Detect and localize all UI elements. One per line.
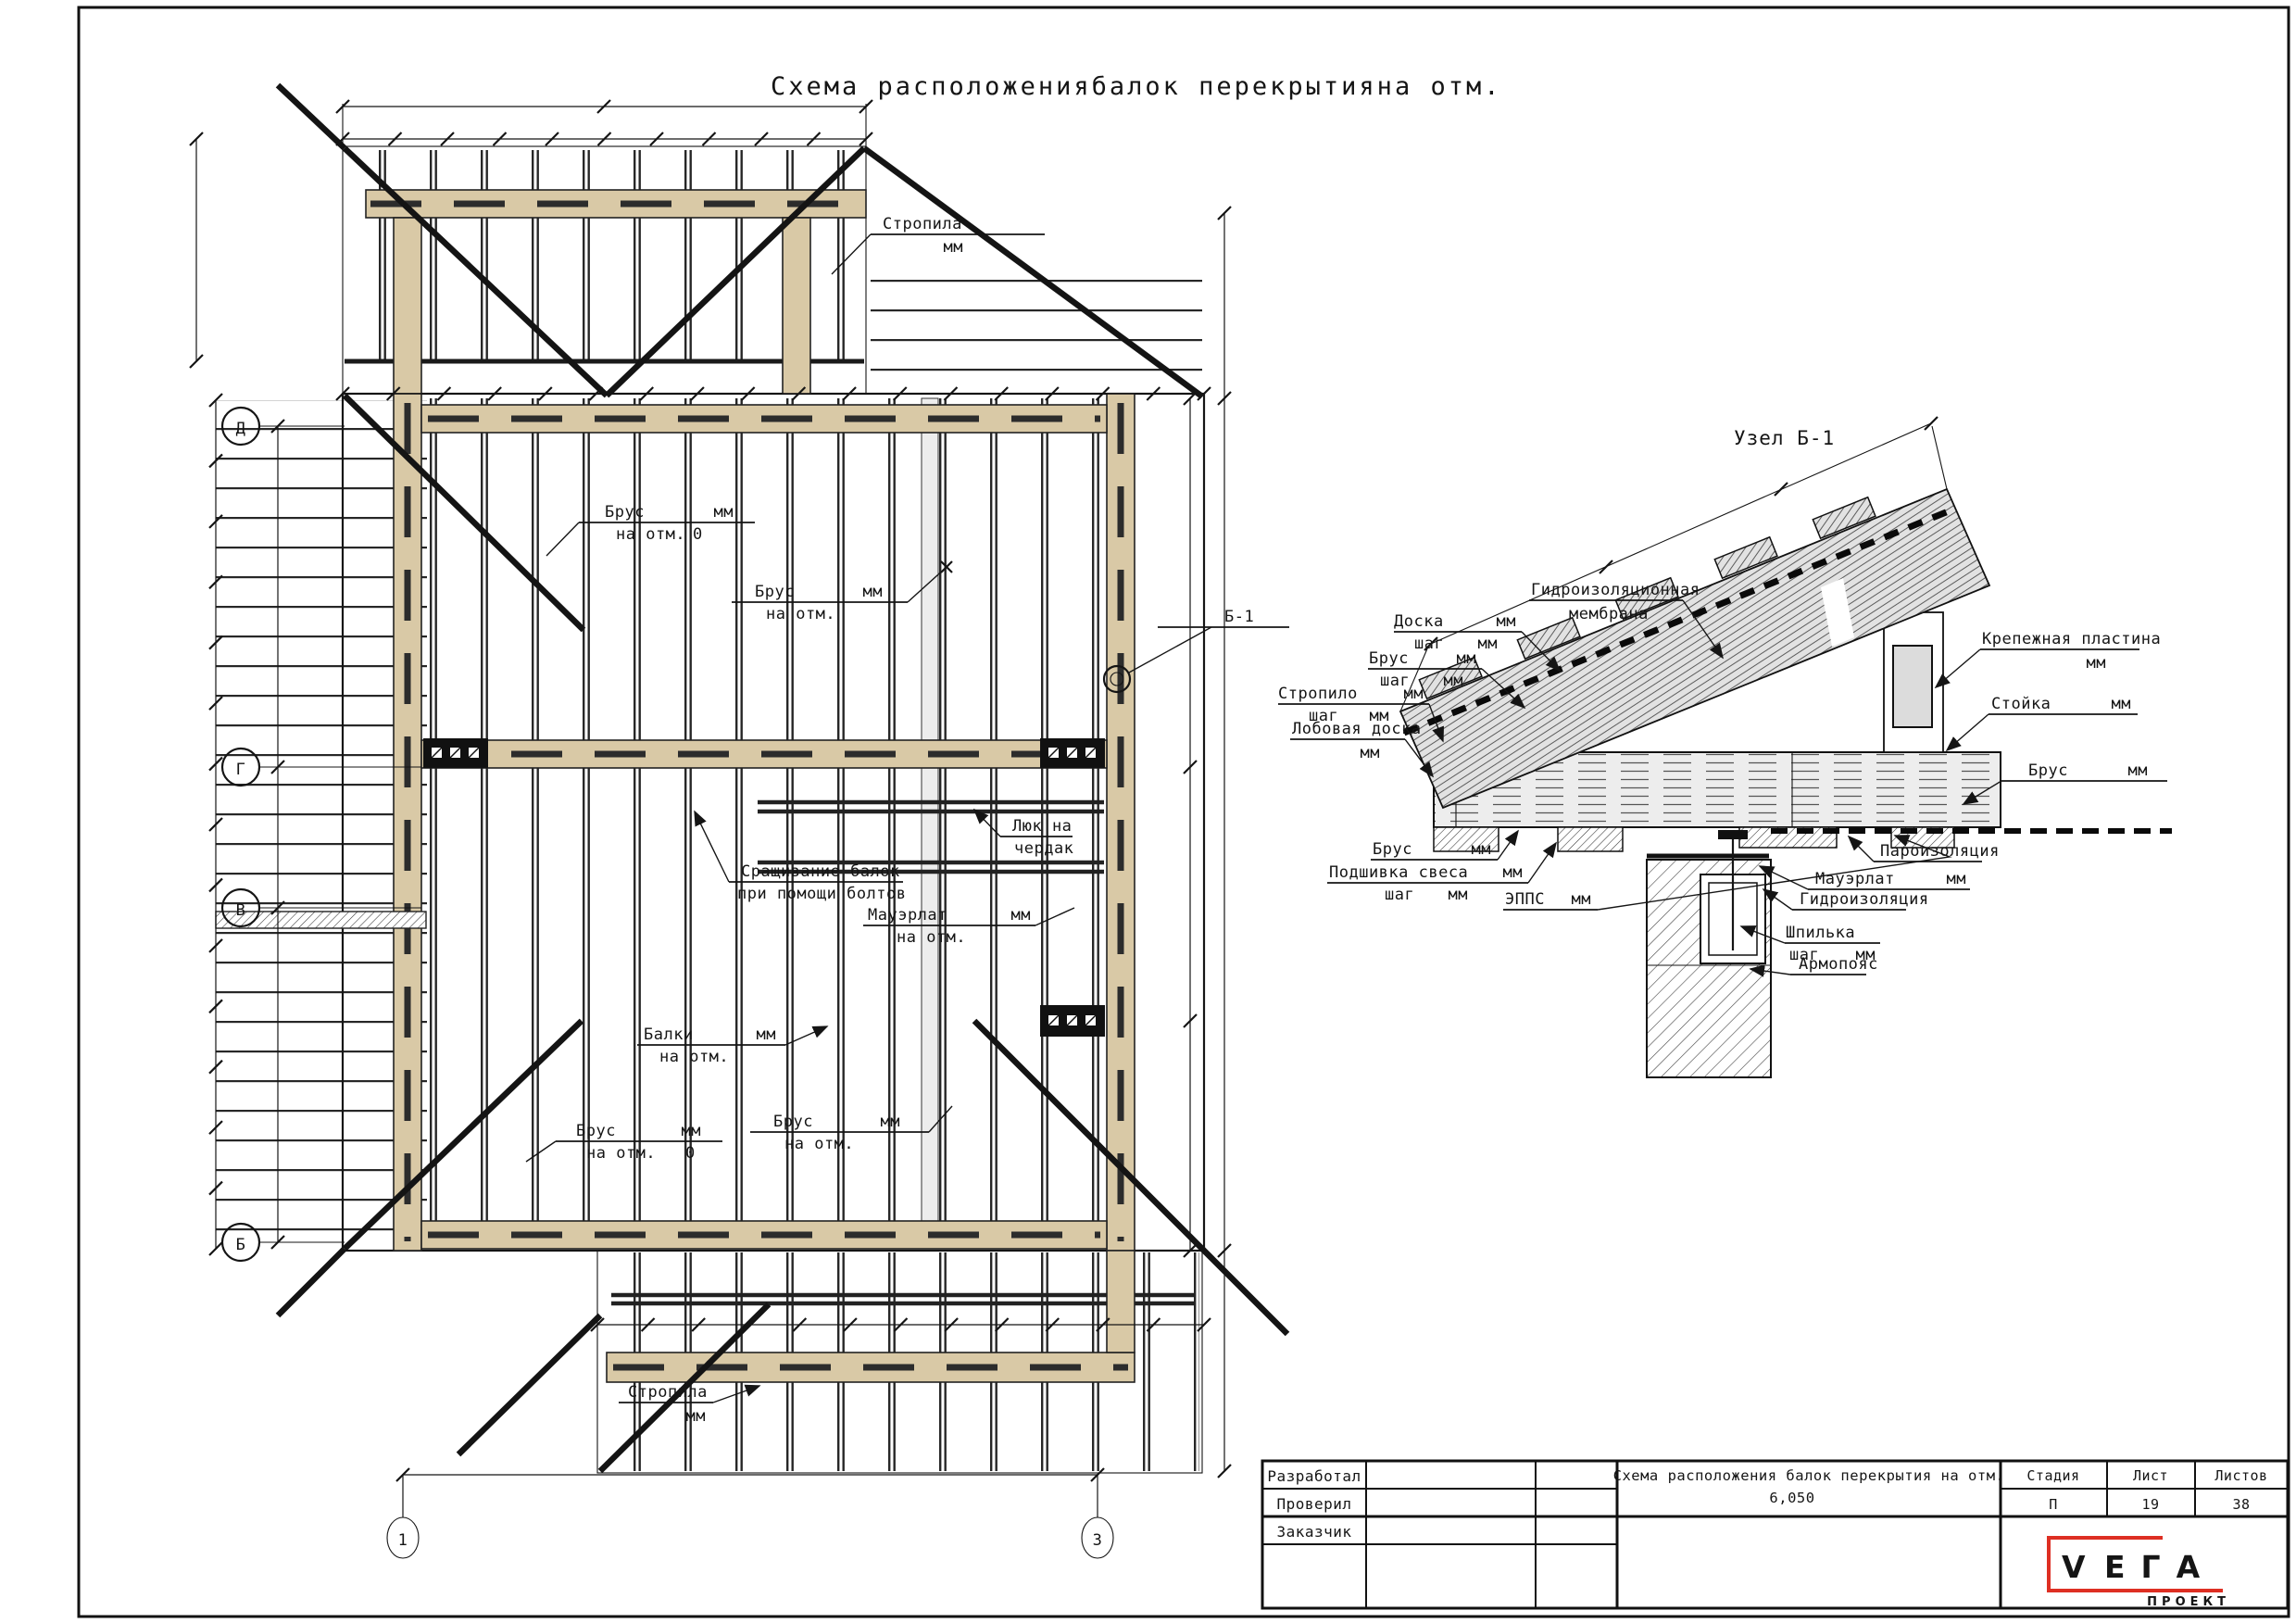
svg-text:на отм.: на отм. bbox=[586, 1144, 656, 1163]
sheet-label: Лист bbox=[2133, 1467, 2168, 1484]
axis-bubble-3: 3 bbox=[1093, 1531, 1103, 1550]
svg-text:Брус: Брус bbox=[755, 583, 795, 601]
axis-bubble-d: Д bbox=[236, 420, 246, 438]
sheet-value: 19 bbox=[2141, 1496, 2159, 1513]
titleblock-row-client: Заказчик bbox=[1276, 1523, 1351, 1541]
svg-text:на отм.: на отм. bbox=[784, 1135, 854, 1153]
doc-title: Схема расположения балок перекрытия на о… bbox=[1613, 1467, 2005, 1484]
svg-text:мм: мм bbox=[1444, 672, 1463, 690]
svg-text:Балки: Балки bbox=[644, 1025, 694, 1044]
svg-text:мм: мм bbox=[944, 238, 963, 257]
vega-logo: V ЕГА ПРОЕКТ bbox=[2049, 1538, 2230, 1609]
svg-text:шаг: шаг bbox=[1414, 635, 1444, 653]
axis-bubble-v: В bbox=[236, 901, 246, 920]
svg-text:Армопояс: Армопояс bbox=[1799, 955, 1878, 974]
svg-text:Подшивка свеса: Подшивка свеса bbox=[1329, 863, 1468, 882]
svg-text:мм: мм bbox=[1457, 649, 1476, 668]
svg-text:Шпилька: Шпилька bbox=[1786, 924, 1855, 942]
svg-text:мм: мм bbox=[1011, 906, 1031, 925]
detail-view: Узел Б-1 bbox=[1278, 417, 2172, 1077]
svg-text:мм: мм bbox=[757, 1025, 776, 1044]
titleblock-row-checked: Проверил bbox=[1276, 1495, 1351, 1513]
svg-text:мм: мм bbox=[1947, 870, 1966, 888]
svg-text:Брус: Брус bbox=[773, 1113, 813, 1131]
svg-text:на отм.: на отм. bbox=[659, 1048, 729, 1066]
node-ref-label: Б-1 bbox=[1224, 608, 1254, 626]
label-lobovaya: Лобовая доска мм bbox=[1290, 720, 1433, 776]
logo-v: V bbox=[2062, 1549, 2086, 1585]
svg-text:Люк на: Люк на bbox=[1012, 817, 1072, 836]
svg-text:мм: мм bbox=[686, 1407, 706, 1426]
axis-bubble-b: Б bbox=[236, 1236, 246, 1254]
label-mauerlat-detail: Мауэрлат мм bbox=[1760, 866, 1970, 889]
svg-text:Брус: Брус bbox=[605, 503, 645, 522]
stage-value: П bbox=[2049, 1496, 2058, 1513]
axis-bubble-1: 1 bbox=[398, 1531, 408, 1550]
svg-text:Стропило: Стропило bbox=[1278, 685, 1358, 703]
svg-text:мм: мм bbox=[1478, 635, 1498, 653]
svg-text:при помощи болтов: при помощи болтов bbox=[737, 885, 907, 903]
titleblock-row-developed: Разработал bbox=[1267, 1467, 1361, 1485]
svg-text:мм: мм bbox=[1404, 685, 1424, 703]
svg-text:Мауэрлат: Мауэрлат bbox=[1815, 870, 1895, 888]
svg-text:мм: мм bbox=[1472, 840, 1491, 859]
svg-text:Стропила: Стропила bbox=[883, 215, 962, 233]
svg-text:на отм.: на отм. bbox=[766, 605, 835, 623]
sheets-value: 38 bbox=[2232, 1496, 2250, 1513]
svg-text:мм: мм bbox=[881, 1113, 900, 1131]
label-stoyka: Стойка мм bbox=[1947, 695, 2138, 750]
svg-text:0: 0 bbox=[693, 525, 703, 544]
svg-text:Крепежная пластина: Крепежная пластина bbox=[1982, 630, 2161, 648]
svg-text:Гидроизоляционная: Гидроизоляционная bbox=[1531, 581, 1700, 599]
label-gidro: Гидроизоляция bbox=[1763, 889, 1929, 910]
svg-text:Пароизоляция: Пароизоляция bbox=[1880, 842, 2000, 861]
svg-text:Мауэрлат: Мауэрлат bbox=[868, 906, 947, 925]
svg-text:ЭППС: ЭППС bbox=[1505, 890, 1545, 909]
svg-text:чердак: чердак bbox=[1014, 839, 1073, 858]
svg-text:мм: мм bbox=[1361, 744, 1380, 762]
detail-title: Узел Б-1 bbox=[1734, 427, 1835, 449]
logo-rest: ЕГА bbox=[2104, 1549, 2215, 1585]
svg-text:мм: мм bbox=[714, 503, 734, 522]
ridge-board bbox=[922, 398, 938, 1246]
svg-text:Брус: Брус bbox=[1369, 649, 1409, 668]
svg-text:Сращивание балок: Сращивание балок bbox=[741, 862, 900, 881]
svg-text:Гидроизоляция: Гидроизоляция bbox=[1800, 890, 1929, 909]
svg-text:Стойка: Стойка bbox=[1991, 695, 2051, 713]
svg-text:мм: мм bbox=[2112, 695, 2131, 713]
svg-text:на отм.: на отм. bbox=[897, 928, 966, 947]
stage-label: Стадия bbox=[2026, 1467, 2079, 1484]
svg-text:мм: мм bbox=[2128, 761, 2148, 780]
svg-text:шаг: шаг bbox=[1385, 886, 1414, 904]
svg-text:Брус: Брус bbox=[576, 1122, 616, 1140]
svg-text:мм: мм bbox=[1572, 890, 1591, 909]
svg-text:мм: мм bbox=[1449, 886, 1468, 904]
svg-text:мм: мм bbox=[2087, 654, 2106, 673]
sheets-label: Листов bbox=[2214, 1467, 2267, 1484]
svg-text:0: 0 bbox=[685, 1144, 696, 1163]
svg-text:Лобовая доска: Лобовая доска bbox=[1292, 720, 1422, 738]
rafter-field-top-right bbox=[871, 278, 1202, 393]
svg-text:Брус: Брус bbox=[2028, 761, 2068, 780]
label-krepezh: Крепежная пластина мм bbox=[1936, 630, 2161, 687]
svg-text:на отм.: на отм. bbox=[616, 525, 685, 544]
svg-text:мм: мм bbox=[863, 583, 883, 601]
svg-text:Стропила: Стропила bbox=[628, 1383, 708, 1402]
logo-sub: ПРОЕКТ bbox=[2147, 1595, 2230, 1609]
joist-field-main bbox=[426, 398, 1107, 1246]
svg-text:Брус: Брус bbox=[1373, 840, 1412, 859]
svg-text:мм: мм bbox=[1503, 863, 1523, 882]
svg-text:Доска: Доска bbox=[1394, 612, 1444, 631]
svg-text:мембрана: мембрана bbox=[1569, 605, 1649, 623]
svg-text:мм: мм bbox=[682, 1122, 701, 1140]
drawing-sheet: Схема расположениябалок перекрытияна отм… bbox=[0, 0, 2296, 1623]
doc-elevation: 6,050 bbox=[1769, 1490, 1814, 1506]
title-block: Разработал Проверил Заказчик Схема распо… bbox=[1262, 1461, 2288, 1609]
fixing-plate bbox=[1893, 646, 1932, 727]
sheet-title: Схема расположениябалок перекрытияна отм… bbox=[771, 72, 1501, 101]
axis-bubble-g: Г bbox=[236, 761, 246, 779]
plan-view: Б-1 Д Г В Б 1 3 bbox=[190, 85, 1289, 1558]
svg-text:мм: мм bbox=[1497, 612, 1516, 631]
